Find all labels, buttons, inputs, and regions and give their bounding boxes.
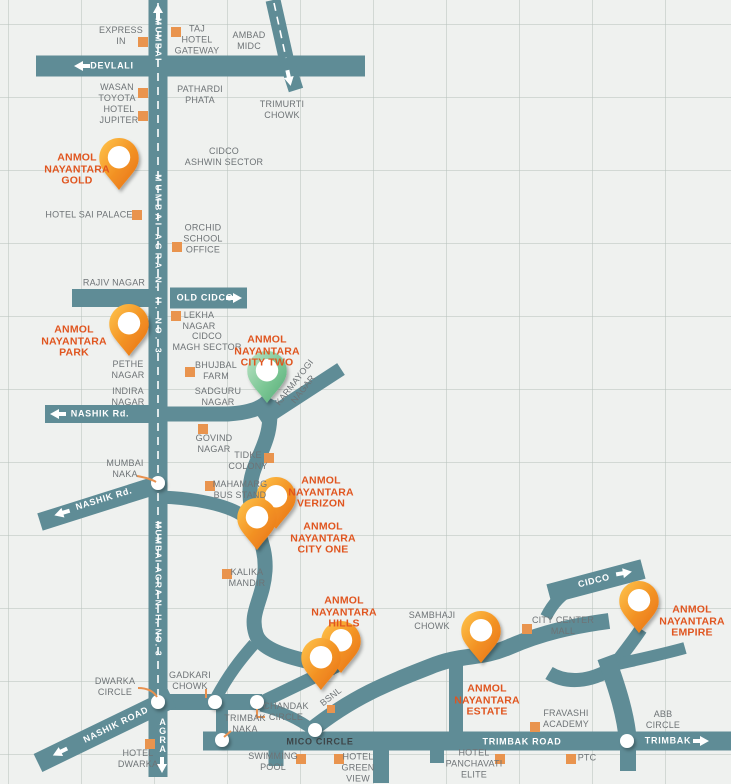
landmark-label-indira-nagar: INDIRA NAGAR: [111, 386, 144, 408]
property-label-gold: ANMOL NAYANTARA GOLD: [44, 153, 110, 188]
landmark-label-cidco-magh-sector: CIDCO MAGH SECTOR: [172, 331, 241, 353]
pin-verizon-front[interactable]: [237, 498, 276, 550]
landmark-marker-bhujbal-farm: [185, 367, 195, 377]
property-label-verizon: ANMOL NAYANTARA VERIZON: [288, 476, 354, 511]
location-map: DEVLALI OLD CIDCO NASHIK Rd. NASHIK Rd. …: [0, 0, 731, 784]
landmark-label-fravashi-academy: FRAVASHI ACADEMY: [543, 708, 589, 730]
pin-empire[interactable]: [619, 581, 658, 633]
property-label-city-two: ANMOL NAYANTARA CITY TWO: [234, 335, 300, 370]
landmark-label-mahamarg-bus-stand: MAHAMARG BUS STAND: [213, 479, 268, 501]
road-branch-mahamarg: [158, 497, 251, 524]
road-sign-nashik-rd-upper: NASHIK Rd.: [71, 410, 130, 419]
property-label-park: ANMOL NAYANTARA PARK: [41, 325, 107, 360]
landmark-label-ptc: PTC: [578, 753, 597, 764]
road-abb-link: [606, 657, 628, 742]
landmark-label-ambad-midc: AMBAD MIDC: [232, 30, 265, 52]
landmark-label-bhujbal-farm: BHUJBAL FARM: [195, 360, 237, 382]
road-sign-trimbak-road: TRIMBAK ROAD: [483, 738, 562, 747]
landmark-label-swimming-pool: SWIMMING POOL: [248, 751, 298, 773]
landmark-label-hotel-dwarka: HOTEL DWARKA: [118, 748, 158, 770]
property-label-estate: ANMOL NAYANTARA ESTATE: [454, 684, 520, 719]
landmark-label-wasan-toyota: WASAN TOYOTA: [98, 82, 135, 104]
landmark-marker-wasan-toyota: [138, 88, 148, 98]
landmark-label-mumbai-naka: MUMBAI NAKA: [106, 458, 143, 480]
landmark-label-hotel-panchavati-elite: HOTEL PANCHAVATI ELITE: [446, 748, 503, 781]
landmark-label-cidco-ashwin-sector: CIDCO ASHWIN SECTOR: [185, 146, 263, 168]
landmark-marker-city-center-mall: [522, 624, 532, 634]
landmark-label-abb-circle: ABB CIRCLE: [646, 709, 680, 731]
road-sign-mumbai-agra-2: MUMBAI AGRA N. H. NO. 3: [154, 521, 163, 657]
landmark-marker-lekha-nagar: [171, 311, 181, 321]
landmark-label-dwarka-circle: DWARKA CIRCLE: [95, 676, 135, 698]
landmark-label-trimbak-naka: TRIMBAK NAKA: [224, 713, 265, 735]
landmark-marker-orchid-school-office: [172, 242, 182, 252]
landmark-label-hotel-green-view: HOTEL GREEN VIEW: [341, 752, 374, 784]
junction-abb-circle: [620, 734, 634, 748]
road-sign-trimbak: TRIMBAK: [645, 737, 691, 746]
junction-gadkari-chowk: [208, 695, 222, 709]
landmark-label-govind-nagar: GOVIND NAGAR: [196, 433, 233, 455]
property-label-empire: ANMOL NAYANTARA EMPIRE: [659, 605, 725, 640]
junction-dwarka-circle: [151, 695, 165, 709]
landmark-label-gadkari-chowk: GADKARI CHOWK: [169, 670, 211, 692]
landmark-label-rajiv-nagar: RAJIV NAGAR: [83, 278, 145, 289]
road-gadkari-link: [216, 644, 254, 698]
property-label-hills: ANMOL NAYANTARA HILLS: [311, 596, 377, 631]
landmark-label-taj-hotel-gateway: TAJ HOTEL GATEWAY: [175, 24, 220, 57]
landmark-label-pethe-nagar: PETHE NAGAR: [111, 359, 144, 381]
landmark-label-chandak-circle: CHANDAK CIRCLE: [263, 701, 308, 723]
landmark-marker-hotel-sai-palace: [132, 210, 142, 220]
landmark-label-kalika-mandir: KALIKA MANDIR: [229, 567, 266, 589]
landmark-label-sadguru-nagar: SADGURU NAGAR: [195, 386, 241, 408]
road-sign-agra: A G R A: [159, 718, 167, 754]
landmark-label-pathardi-phata: PATHARDI PHATA: [177, 84, 223, 106]
landmark-marker-bsnl: [327, 705, 335, 713]
landmark-label-hotel-jupiter: HOTEL JUPITER: [100, 104, 139, 126]
landmark-label-lekha-nagar: LEKHA NAGAR: [182, 310, 215, 332]
road-sign-old-cidco: OLD CIDCO: [177, 294, 234, 303]
road-sign-mumbai: MUMBAI: [154, 18, 163, 62]
junction-chandak-circle: [250, 695, 264, 709]
landmark-label-express-inn: EXPRESS IN: [99, 25, 143, 47]
pin-park[interactable]: [109, 304, 148, 356]
road-sign-devlali: DEVLALI: [90, 62, 133, 71]
landmark-label-city-center-mall: CITY CENTER MALL: [532, 615, 594, 637]
junction-mico-circle: [308, 723, 322, 737]
road-sign-mumbai-agra-1: MUMBAI AGRA N. H. NO. 3: [154, 174, 163, 356]
landmark-label-orchid-school-office: ORCHID SCHOOL OFFICE: [183, 223, 222, 256]
landmark-label-sambhaji-chowk: SAMBHAJI CHOWK: [409, 610, 456, 632]
landmark-label-trimurti-chowk: TRIMURTI CHOWK: [260, 99, 304, 121]
property-label-city-one: ANMOL NAYANTARA CITY ONE: [290, 522, 356, 557]
landmark-marker-fravashi-academy: [530, 722, 540, 732]
road-sign-mico-circle: MICO CIRCLE: [286, 738, 353, 747]
landmark-label-tidke-colony: TIDKE COLONY: [228, 450, 267, 472]
landmark-label-hotel-sai-palace: HOTEL SAI PALACE: [45, 210, 132, 221]
landmark-marker-ptc: [566, 754, 576, 764]
landmark-marker-hotel-jupiter: [138, 111, 148, 121]
junction-mumbai-naka: [151, 476, 165, 490]
